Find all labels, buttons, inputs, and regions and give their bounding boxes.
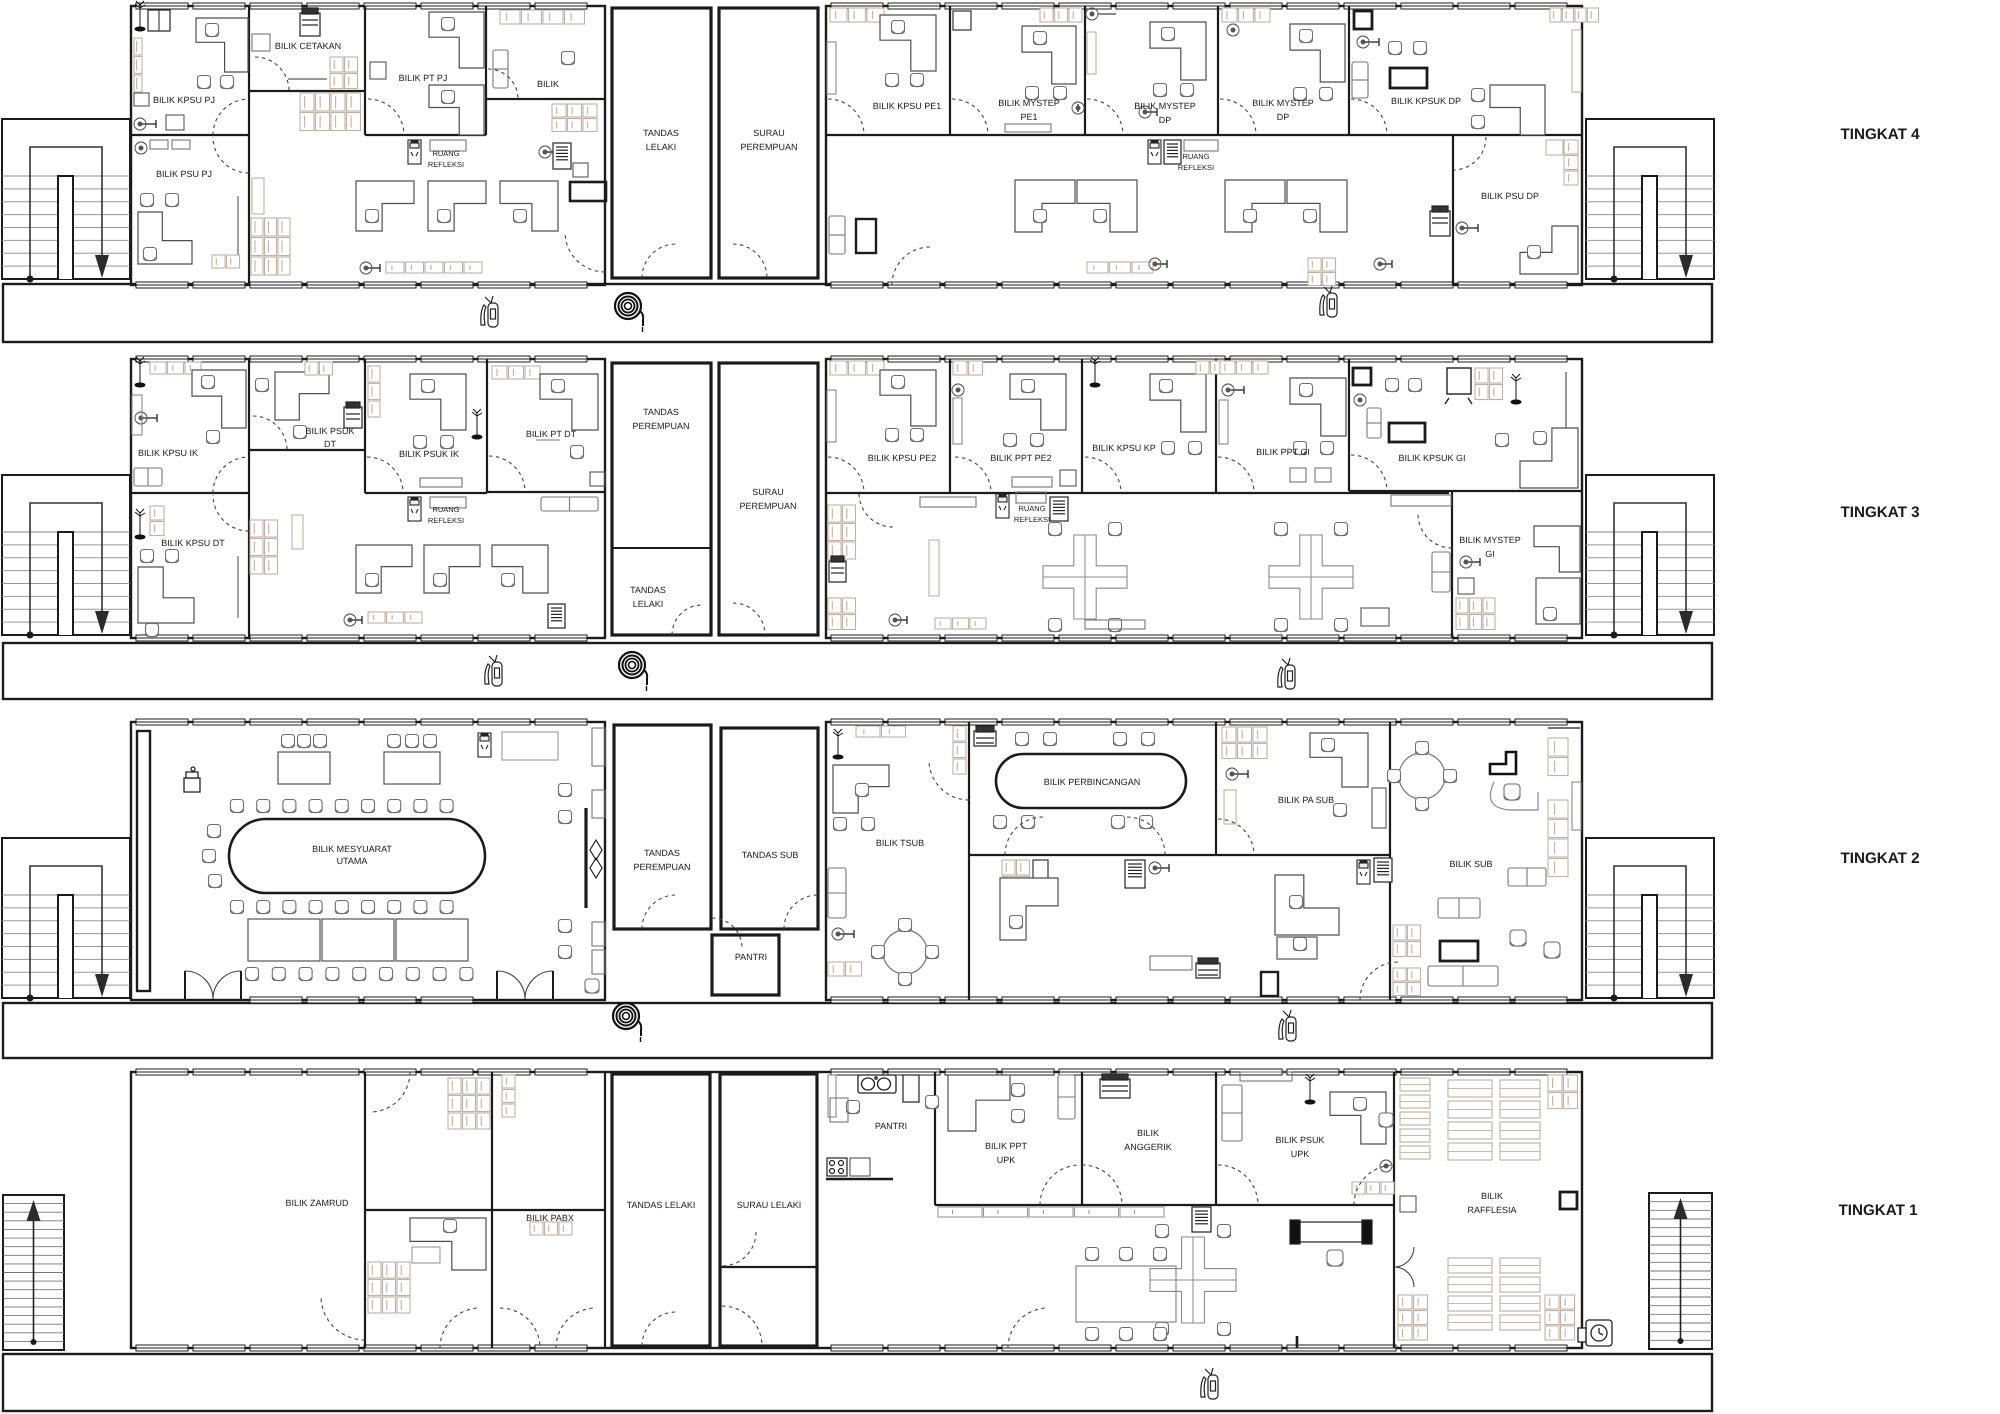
- svg-text:BILIK PT PJ: BILIK PT PJ: [399, 73, 448, 83]
- svg-text:BILIK TSUB: BILIK TSUB: [876, 838, 924, 848]
- svg-text:BILIK KPSU IK: BILIK KPSU IK: [138, 448, 198, 458]
- svg-text:DP: DP: [1277, 112, 1290, 122]
- svg-text:BILIK KPSU PE1: BILIK KPSU PE1: [873, 101, 942, 111]
- svg-text:ANGGERIK: ANGGERIK: [1124, 1142, 1172, 1152]
- svg-text:TANDAS: TANDAS: [643, 407, 679, 417]
- svg-text:BILIK PSUK: BILIK PSUK: [1275, 1135, 1324, 1145]
- svg-text:UTAMA: UTAMA: [337, 856, 368, 866]
- svg-text:BILIK PSU DP: BILIK PSU DP: [1481, 191, 1539, 201]
- svg-text:BILIK: BILIK: [537, 79, 559, 89]
- svg-text:BILIK PT DT: BILIK PT DT: [526, 429, 577, 439]
- svg-text:LELAKI: LELAKI: [633, 599, 664, 609]
- svg-text:BILIK MYSTEP: BILIK MYSTEP: [1134, 101, 1196, 111]
- svg-text:UPK: UPK: [997, 1155, 1016, 1165]
- svg-text:BILIK MESYUARAT: BILIK MESYUARAT: [312, 844, 392, 854]
- svg-text:BILIK KPSUK DP: BILIK KPSUK DP: [1391, 96, 1461, 106]
- svg-text:BILIK PA SUB: BILIK PA SUB: [1278, 795, 1334, 805]
- svg-text:REFLEKSI: REFLEKSI: [1178, 163, 1214, 172]
- svg-text:SURAU LELAKI: SURAU LELAKI: [737, 1200, 802, 1210]
- svg-text:BILIK KPSUK GI: BILIK KPSUK GI: [1398, 453, 1465, 463]
- svg-text:BILIK KPSU PJ: BILIK KPSU PJ: [153, 95, 215, 105]
- svg-text:PANTRI: PANTRI: [875, 1121, 907, 1131]
- svg-text:BILIK PSUK IK: BILIK PSUK IK: [399, 449, 459, 459]
- svg-text:BILIK PSU PJ: BILIK PSU PJ: [156, 169, 212, 179]
- svg-text:TANDAS: TANDAS: [644, 848, 680, 858]
- svg-text:RAFFLESIA: RAFFLESIA: [1467, 1205, 1516, 1215]
- svg-text:BILIK PPT: BILIK PPT: [985, 1141, 1028, 1151]
- svg-text:PEREMPUAN: PEREMPUAN: [632, 421, 689, 431]
- svg-text:REFLEKSI: REFLEKSI: [428, 516, 464, 525]
- svg-text:REFLEKSI: REFLEKSI: [428, 160, 464, 169]
- svg-text:TANDAS SUB: TANDAS SUB: [742, 850, 799, 860]
- svg-text:DP: DP: [1159, 115, 1172, 125]
- svg-text:RUANG: RUANG: [432, 149, 459, 158]
- svg-text:REFLEKSI: REFLEKSI: [1014, 515, 1050, 524]
- svg-text:BILIK MYSTEP: BILIK MYSTEP: [998, 98, 1060, 108]
- svg-text:BILIK MYSTEP: BILIK MYSTEP: [1252, 98, 1314, 108]
- svg-text:LELAKI: LELAKI: [646, 142, 677, 152]
- svg-text:BILIK KPSU KP: BILIK KPSU KP: [1092, 443, 1156, 453]
- svg-text:BILIK KPSU DT: BILIK KPSU DT: [161, 538, 225, 548]
- svg-text:TINGKAT 4: TINGKAT 4: [1840, 126, 1920, 143]
- svg-text:SURAU: SURAU: [752, 487, 784, 497]
- svg-text:BILIK MYSTEP: BILIK MYSTEP: [1459, 535, 1521, 545]
- svg-text:SURAU: SURAU: [753, 128, 785, 138]
- svg-text:RUANG: RUANG: [1018, 504, 1045, 513]
- svg-text:BILIK CETAKAN: BILIK CETAKAN: [275, 41, 341, 51]
- svg-text:TINGKAT 3: TINGKAT 3: [1840, 504, 1919, 521]
- svg-text:BILIK PABX: BILIK PABX: [526, 1213, 574, 1223]
- svg-text:BILIK PPT PE2: BILIK PPT PE2: [990, 453, 1051, 463]
- svg-text:PEREMPUAN: PEREMPUAN: [739, 501, 796, 511]
- svg-text:BILIK: BILIK: [1137, 1128, 1159, 1138]
- svg-text:BILIK PERBINCANGAN: BILIK PERBINCANGAN: [1044, 777, 1141, 787]
- svg-text:TANDAS: TANDAS: [643, 128, 679, 138]
- svg-text:BILIK PSUK: BILIK PSUK: [305, 426, 354, 436]
- svg-text:PE1: PE1: [1020, 112, 1037, 122]
- svg-text:TANDAS LELAKI: TANDAS LELAKI: [627, 1200, 696, 1210]
- svg-text:BILIK SUB: BILIK SUB: [1449, 859, 1492, 869]
- svg-text:PEREMPUAN: PEREMPUAN: [740, 142, 797, 152]
- svg-text:RUANG: RUANG: [1182, 152, 1209, 161]
- svg-text:BILIK PPT GI: BILIK PPT GI: [1256, 447, 1310, 457]
- svg-text:BILIK ZAMRUD: BILIK ZAMRUD: [285, 1198, 349, 1208]
- svg-text:TINGKAT 1: TINGKAT 1: [1838, 1202, 1918, 1219]
- svg-text:TANDAS: TANDAS: [630, 585, 666, 595]
- svg-text:PEREMPUAN: PEREMPUAN: [633, 862, 690, 872]
- svg-text:UPK: UPK: [1291, 1149, 1310, 1159]
- svg-text:GI: GI: [1485, 549, 1495, 559]
- svg-text:PANTRI: PANTRI: [735, 952, 767, 962]
- svg-text:BILIK KPSU PE2: BILIK KPSU PE2: [868, 453, 937, 463]
- svg-text:BILIK: BILIK: [1481, 1191, 1503, 1201]
- svg-text:TINGKAT 2: TINGKAT 2: [1840, 850, 1919, 867]
- svg-text:DT: DT: [324, 439, 336, 449]
- svg-text:RUANG: RUANG: [432, 505, 459, 514]
